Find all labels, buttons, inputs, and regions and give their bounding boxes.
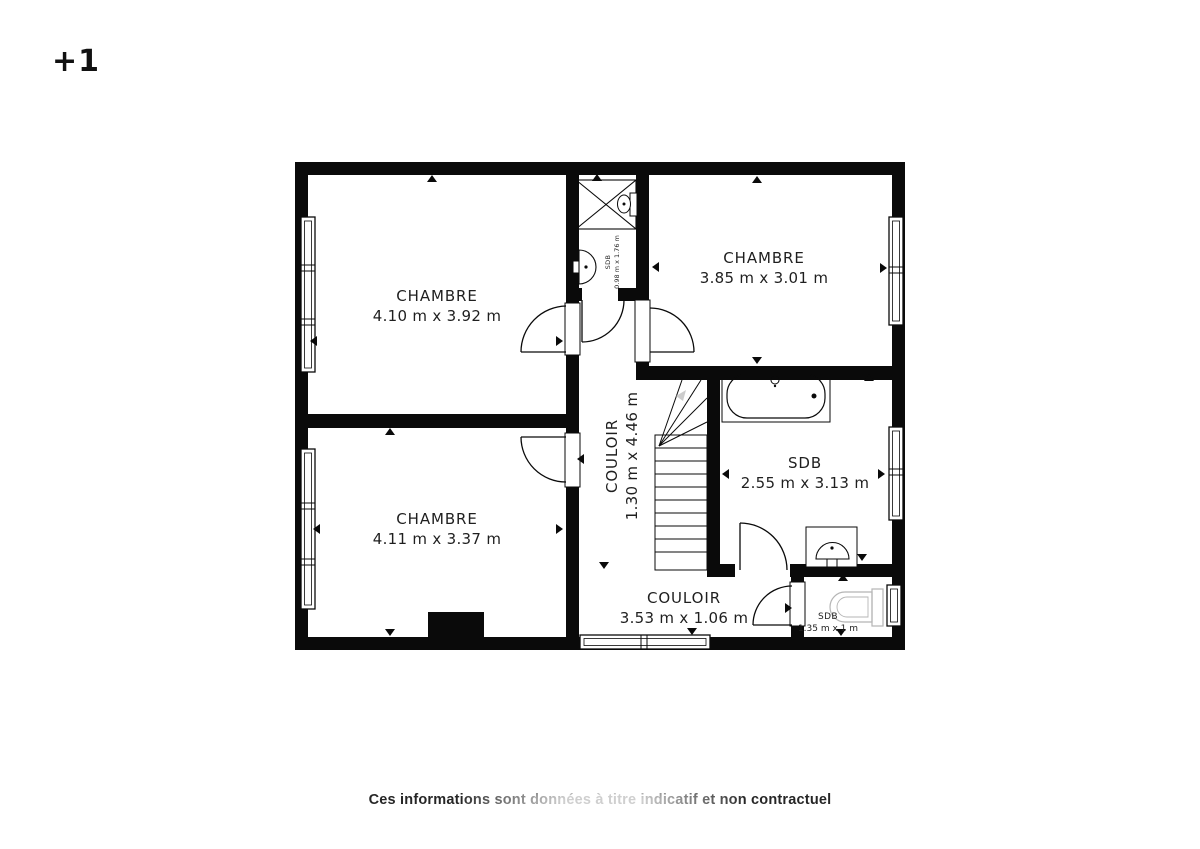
- dimension-arrow: [385, 629, 395, 636]
- dimension-arrow: [722, 469, 729, 479]
- room-dimensions: 3.85 m x 3.01 m: [700, 268, 828, 288]
- room-name: CHAMBRE: [700, 248, 828, 268]
- dimension-arrow: [687, 628, 697, 635]
- room-label-chambre-1: CHAMBRE 4.10 m x 3.92 m: [373, 286, 501, 326]
- window: [889, 427, 903, 520]
- room-label-sdb-main: SDB 2.55 m x 3.13 m: [741, 453, 869, 493]
- room-label-sdb-small-top: SDB 0.98 m x 1.76 m: [604, 235, 622, 289]
- dimension-arrow: [752, 176, 762, 183]
- room-dimensions: 4.10 m x 3.92 m: [373, 306, 501, 326]
- room-name: SDB: [604, 235, 613, 289]
- disclaimer-text: Ces informations sont données à titre in…: [0, 792, 1200, 808]
- dimension-arrow: [752, 357, 762, 364]
- dimension-arrow: [878, 469, 885, 479]
- floor-plan-drawing: [0, 0, 1200, 849]
- window: [889, 217, 903, 325]
- room-name: CHAMBRE: [373, 509, 501, 529]
- room-dimensions: 3.53 m x 1.06 m: [620, 608, 748, 628]
- room-name: SDB: [741, 453, 869, 473]
- room-dimensions: 1.30 m x 4.46 m: [622, 392, 642, 520]
- dimension-arrow: [857, 554, 867, 561]
- door: [521, 433, 580, 487]
- dimension-arrow: [599, 562, 609, 569]
- room-dimensions: 2.55 m x 3.13 m: [741, 473, 869, 493]
- room-name: COULOIR: [602, 392, 622, 520]
- dimension-arrow: [880, 263, 887, 273]
- dimension-arrow: [385, 428, 395, 435]
- room-label-couloir-horizontal: COULOIR 3.53 m x 1.06 m: [620, 588, 748, 628]
- room-name: CHAMBRE: [373, 286, 501, 306]
- door: [582, 287, 624, 342]
- room-label-sdb-small-bottom: SDB 1.35 m x 1 m: [798, 611, 858, 635]
- door: [635, 300, 694, 362]
- staircase: [655, 380, 707, 570]
- window: [580, 635, 710, 649]
- floorplan-page: +1: [0, 0, 1200, 849]
- door: [521, 303, 580, 355]
- chimney-block: [428, 612, 484, 639]
- dimension-arrow: [592, 174, 602, 181]
- dimension-arrow: [556, 524, 563, 534]
- window: [301, 449, 315, 609]
- room-dimensions: 4.11 m x 3.37 m: [373, 529, 501, 549]
- room-dimensions: 0.98 m x 1.76 m: [613, 235, 622, 289]
- window: [887, 585, 901, 626]
- room-label-couloir-vertical: COULOIR 1.30 m x 4.46 m: [602, 392, 642, 520]
- room-name: SDB: [798, 611, 858, 623]
- room-name: COULOIR: [620, 588, 748, 608]
- window: [301, 217, 315, 372]
- toilet-icon: [618, 193, 638, 216]
- room-label-chambre-2: CHAMBRE 3.85 m x 3.01 m: [700, 248, 828, 288]
- dimension-arrow: [427, 175, 437, 182]
- door: [735, 523, 790, 578]
- sink-main: [806, 527, 857, 567]
- room-label-chambre-3: CHAMBRE 4.11 m x 3.37 m: [373, 509, 501, 549]
- dimension-arrow: [652, 262, 659, 272]
- room-dimensions: 1.35 m x 1 m: [798, 623, 858, 635]
- dimension-arrow: [556, 336, 563, 346]
